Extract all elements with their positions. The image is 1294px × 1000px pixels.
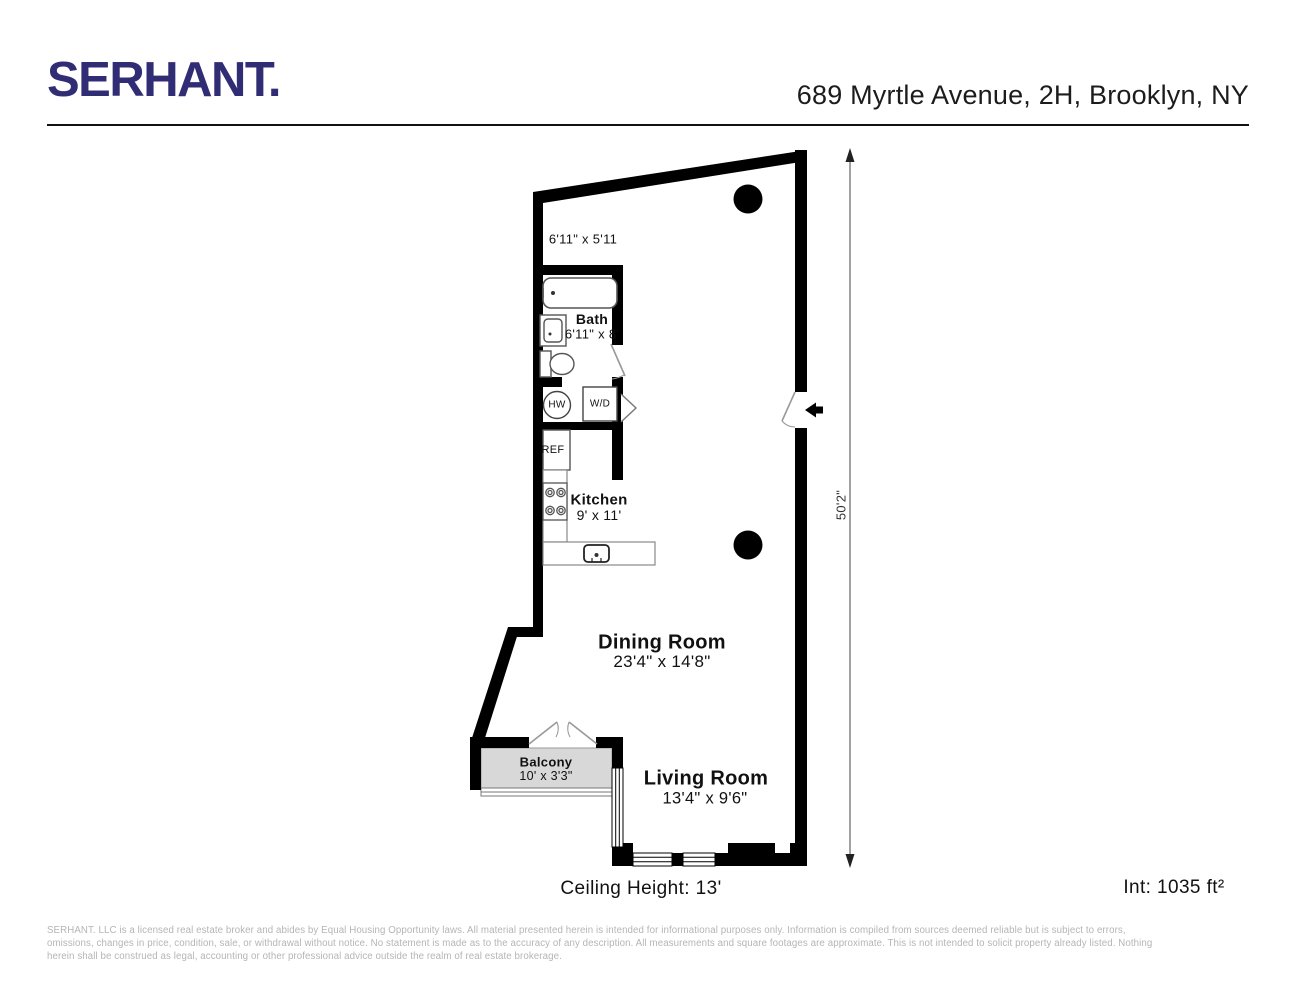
column-dots: [734, 185, 763, 560]
balcony-dims: 10' x 3'3": [519, 769, 572, 783]
living-room-dims: 13'4" x 9'6": [663, 790, 748, 809]
dining-room-dims: 23'4" x 14'8": [613, 652, 710, 672]
bath-room-dims: 6'11" x 8': [565, 327, 619, 342]
bottom-window-1: [633, 853, 672, 866]
bath-room-label: Bath: [576, 311, 608, 327]
stove-icon: [543, 483, 567, 520]
floorplan-drawing: [0, 0, 1294, 1000]
entry-nook-dims: 6'11" x 5'11: [549, 232, 617, 247]
kitchen-room-dims: 9' x 11': [577, 507, 622, 523]
overall-height-dim: 50'2": [834, 490, 849, 520]
bathtub-icon: [543, 278, 617, 308]
bathroom-sink-icon: [540, 315, 566, 346]
balcony-label: Balcony: [520, 755, 573, 770]
washer-dryer-label: W/D: [590, 399, 610, 410]
disclaimer-line-1: SERHANT. LLC is a licensed real estate b…: [47, 924, 1257, 937]
kitchen-room-label: Kitchen: [570, 492, 627, 509]
disclaimer-line-2: omissions, changes in price, condition, …: [47, 937, 1257, 950]
toilet-icon: [540, 351, 574, 377]
living-room-window: [612, 768, 623, 847]
interior-area-label: Int: 1035 ft²: [1123, 877, 1224, 899]
disclaimer-line-3: herein shall be construed as legal, acco…: [47, 950, 1257, 963]
kitchen-sink-icon: [584, 545, 609, 562]
closet-door: [621, 394, 636, 422]
french-doors: [529, 722, 597, 744]
refrigerator-label: REF: [542, 444, 565, 456]
balcony-railing: [481, 788, 612, 796]
ceiling-height-label: Ceiling Height: 13': [560, 878, 721, 900]
entry-door-swing: [782, 392, 795, 427]
water-heater-label: HW: [548, 400, 565, 411]
entry-arrow-icon: [805, 403, 823, 418]
bottom-window-2: [683, 853, 715, 866]
floorplan-page: SERHANT. 689 Myrtle Avenue, 2H, Brooklyn…: [0, 0, 1294, 1000]
living-room-label: Living Room: [644, 768, 768, 791]
bath-door-swing: [611, 344, 625, 379]
